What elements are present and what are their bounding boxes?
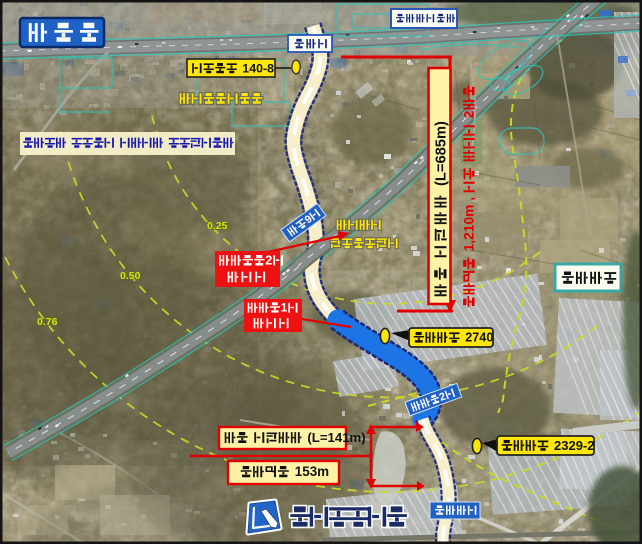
svg-text:153m: 153m xyxy=(295,464,329,479)
svg-text:0.76: 0.76 xyxy=(37,316,58,328)
svg-text:0.25: 0.25 xyxy=(207,220,228,232)
svg-text:2: 2 xyxy=(462,110,477,118)
svg-text:1,210m ,: 1,210m , xyxy=(462,197,477,251)
svg-text:2740: 2740 xyxy=(465,331,493,345)
svg-text:2329-2: 2329-2 xyxy=(554,438,594,453)
svg-text:(L=141m): (L=141m) xyxy=(307,430,365,445)
svg-text:1: 1 xyxy=(281,301,288,315)
svg-text:140-8: 140-8 xyxy=(242,61,274,75)
svg-text:0.50: 0.50 xyxy=(120,270,141,282)
svg-text:2: 2 xyxy=(265,254,272,268)
svg-text:(L=685m): (L=685m) xyxy=(433,121,449,186)
